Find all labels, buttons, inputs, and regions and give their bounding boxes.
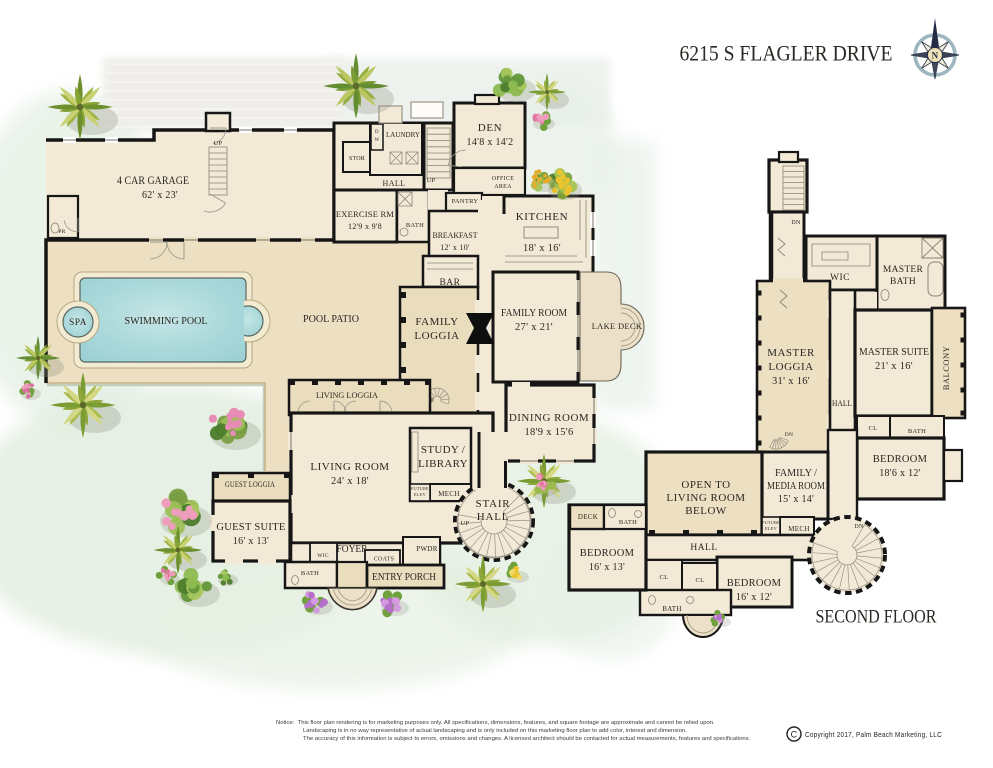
svg-text:LIVING ROOM: LIVING ROOM [666, 492, 745, 504]
svg-text:GUEST LOGGIA: GUEST LOGGIA [225, 480, 275, 489]
svg-text:BEDROOM: BEDROOM [873, 454, 928, 465]
svg-text:Landscaping is in no way repre: Landscaping is in no way representative … [303, 728, 687, 734]
svg-text:LIBRARY: LIBRARY [418, 458, 468, 470]
svg-text:ENTRY PORCH: ENTRY PORCH [372, 572, 436, 583]
svg-text:FAMILY: FAMILY [415, 316, 458, 328]
svg-text:FUTURE: FUTURE [411, 486, 429, 491]
svg-text:BATH: BATH [890, 277, 916, 287]
svg-text:BEDROOM: BEDROOM [580, 548, 635, 559]
svg-text:OFFICE: OFFICE [492, 176, 515, 182]
svg-text:HALL: HALL [477, 511, 510, 523]
svg-text:LOGGIA: LOGGIA [768, 361, 813, 373]
svg-text:ELEV: ELEV [414, 492, 426, 497]
svg-text:FAMILY /: FAMILY / [775, 468, 817, 479]
svg-text:LAUNDRY: LAUNDRY [386, 130, 421, 139]
svg-text:27' x 21': 27' x 21' [515, 322, 553, 333]
svg-text:LIVING LOGGIA: LIVING LOGGIA [316, 391, 378, 400]
svg-text:C: C [791, 730, 798, 740]
svg-text:MASTER: MASTER [883, 265, 924, 275]
svg-text:OPEN TO: OPEN TO [681, 479, 730, 491]
svg-text:12'9 x 9'8: 12'9 x 9'8 [348, 222, 382, 231]
svg-text:FAMILY ROOM: FAMILY ROOM [501, 307, 567, 319]
svg-text:GUEST SUITE: GUEST SUITE [216, 522, 285, 533]
svg-text:PR: PR [58, 229, 65, 235]
svg-text:18'9 x 15'6: 18'9 x 15'6 [524, 427, 573, 438]
svg-text:PANTRY: PANTRY [452, 198, 479, 205]
svg-text:FOYER: FOYER [337, 544, 368, 555]
svg-text:STUDY /: STUDY / [421, 444, 466, 456]
svg-text:18' x 16': 18' x 16' [523, 243, 561, 254]
svg-text:The accuracy of this informati: The accuracy of this information is subj… [303, 736, 751, 742]
svg-text:6215 S FLAGLER DRIVE: 6215 S FLAGLER DRIVE [680, 41, 893, 66]
svg-text:BELOW: BELOW [685, 505, 727, 517]
svg-text:CL: CL [696, 577, 705, 584]
svg-text:N: N [932, 51, 939, 61]
svg-text:BALCONY: BALCONY [941, 346, 951, 391]
svg-text:WIC: WIC [830, 273, 850, 283]
svg-text:MECH: MECH [438, 490, 459, 498]
svg-text:KITCHEN: KITCHEN [516, 211, 568, 223]
svg-text:16' x 13': 16' x 13' [589, 562, 625, 573]
svg-text:Copyright 2017, Palm Beach Mar: Copyright 2017, Palm Beach Marketing, LL… [805, 730, 942, 739]
svg-text:HALL: HALL [832, 399, 852, 408]
svg-text:SECOND FLOOR: SECOND FLOOR [816, 608, 938, 628]
svg-text:CL: CL [869, 425, 878, 432]
svg-text:AREA: AREA [494, 184, 512, 190]
svg-text:DN: DN [791, 220, 801, 226]
svg-text:14'8 x 14'2: 14'8 x 14'2 [467, 137, 514, 148]
svg-text:FUTURE: FUTURE [762, 520, 780, 525]
svg-text:BATH: BATH [662, 605, 681, 613]
svg-text:MEDIA ROOM: MEDIA ROOM [767, 481, 826, 492]
svg-text:15' x 14': 15' x 14' [778, 494, 814, 505]
svg-text:EXERCISE RM: EXERCISE RM [336, 209, 394, 219]
svg-text:UP: UP [427, 177, 436, 184]
svg-text:DN: DN [854, 524, 864, 530]
svg-text:UP: UP [461, 520, 470, 527]
svg-text:HALL: HALL [383, 179, 406, 188]
svg-text:MASTER SUITE: MASTER SUITE [859, 346, 929, 358]
svg-text:LIVING ROOM: LIVING ROOM [310, 461, 389, 473]
svg-text:ELEV: ELEV [765, 526, 777, 531]
svg-text:BATH: BATH [301, 570, 319, 577]
svg-text:COATS: COATS [374, 557, 395, 563]
svg-text:MASTER: MASTER [767, 347, 815, 359]
svg-text:4 CAR GARAGE: 4 CAR GARAGE [117, 175, 189, 187]
svg-text:12' x 10': 12' x 10' [440, 243, 470, 252]
svg-text:BEDROOM: BEDROOM [727, 578, 782, 589]
svg-text:STOR: STOR [349, 156, 365, 162]
svg-text:DN: DN [785, 432, 794, 438]
svg-text:PWDR: PWDR [416, 545, 437, 553]
svg-text:DINING ROOM: DINING ROOM [509, 412, 589, 424]
svg-text:31' x 16': 31' x 16' [772, 376, 810, 387]
svg-text:62' x 23': 62' x 23' [142, 190, 178, 201]
svg-text:DECK: DECK [578, 513, 598, 521]
svg-text:W: W [374, 138, 379, 143]
svg-text:LAKE DECK: LAKE DECK [592, 321, 643, 331]
svg-text:BREAKFAST: BREAKFAST [433, 230, 479, 240]
svg-text:BATH: BATH [406, 222, 424, 229]
svg-text:SWIMMING POOL: SWIMMING POOL [125, 315, 208, 327]
svg-text:SPA: SPA [69, 318, 87, 328]
svg-text:DEN: DEN [478, 122, 502, 134]
svg-text:21' x 16': 21' x 16' [875, 361, 913, 372]
svg-text:16' x 12': 16' x 12' [736, 592, 772, 603]
svg-text:BATH: BATH [619, 519, 637, 526]
svg-text:HALL: HALL [690, 543, 717, 553]
svg-text:LOGGIA: LOGGIA [414, 330, 459, 342]
svg-text:MECH: MECH [788, 525, 809, 533]
svg-text:UP: UP [214, 140, 223, 147]
svg-text:18'6 x 12': 18'6 x 12' [879, 468, 921, 479]
svg-text:WIC: WIC [317, 553, 329, 559]
svg-text:Notice: This floor plan rende: Notice: This floor plan rendering is for… [276, 720, 715, 726]
svg-text:STAIR: STAIR [476, 498, 511, 510]
svg-text:POOL PATIO: POOL PATIO [303, 314, 359, 325]
svg-text:CL: CL [660, 574, 669, 581]
svg-text:24' x 18': 24' x 18' [331, 476, 369, 487]
svg-text:D: D [375, 130, 379, 135]
svg-text:16' x 13': 16' x 13' [233, 536, 269, 547]
svg-text:BATH: BATH [908, 428, 926, 435]
